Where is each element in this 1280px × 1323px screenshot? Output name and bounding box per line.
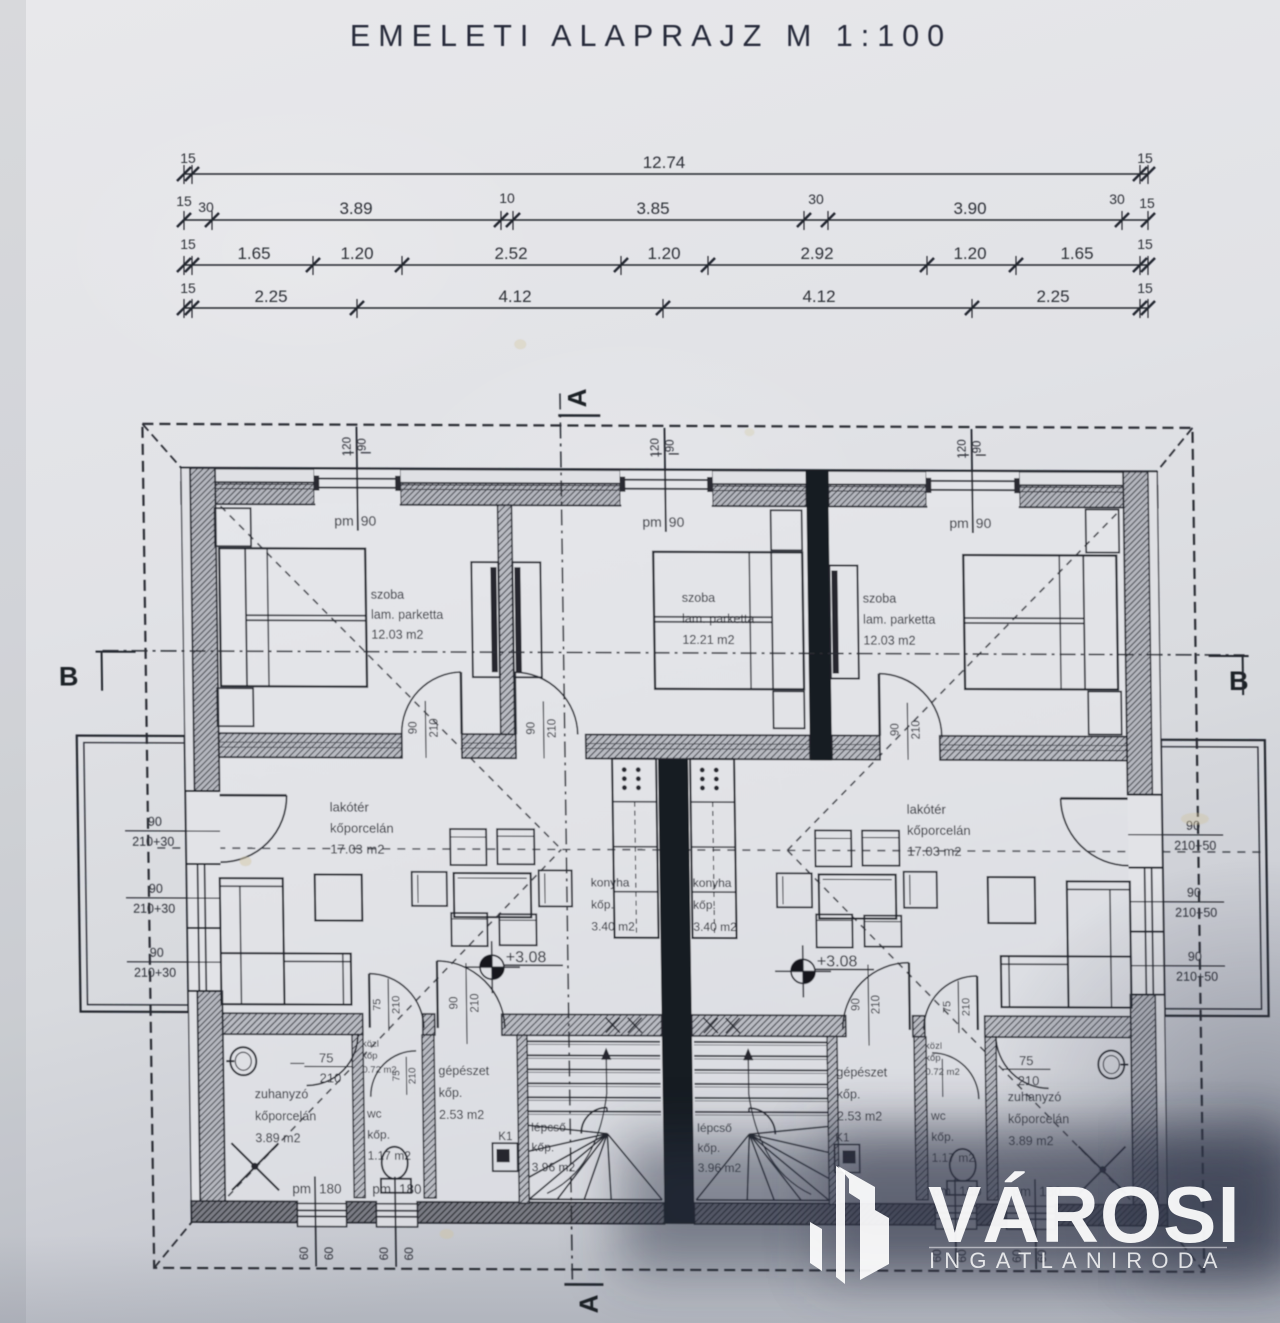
svg-text:szoba: szoba: [863, 592, 897, 606]
svg-text:lépcső: lépcső: [697, 1121, 732, 1135]
svg-text:90: 90: [850, 998, 862, 1011]
svg-text:90: 90: [890, 723, 902, 736]
svg-text:kőp.: kőp.: [591, 898, 614, 912]
svg-text:2.53 m2: 2.53 m2: [439, 1108, 484, 1122]
svg-text:60: 60: [402, 1247, 416, 1261]
svg-text:wc: wc: [366, 1107, 382, 1121]
svg-text:90: 90: [408, 721, 420, 734]
svg-text:+3.08: +3.08: [817, 953, 858, 970]
svg-text:3.40 m2: 3.40 m2: [591, 920, 635, 934]
svg-text:közl: közl: [925, 1041, 942, 1052]
svg-text:szoba: szoba: [371, 588, 405, 602]
svg-text:12.74: 12.74: [643, 153, 686, 172]
svg-text:90: 90: [669, 514, 685, 530]
svg-text:210: 210: [960, 998, 972, 1016]
svg-text:lam. parketta: lam. parketta: [371, 608, 443, 622]
svg-text:90: 90: [148, 815, 162, 829]
svg-text:lakótér: lakótér: [330, 800, 370, 815]
svg-text:210: 210: [870, 995, 882, 1014]
svg-text:1.20: 1.20: [340, 244, 373, 263]
svg-text:210: 210: [320, 1071, 342, 1086]
svg-text:B: B: [59, 662, 79, 692]
svg-text:3.89: 3.89: [339, 199, 372, 218]
svg-text:lam. parketta: lam. parketta: [682, 612, 754, 626]
svg-text:15: 15: [180, 236, 196, 252]
svg-text:gépészet: gépészet: [438, 1064, 489, 1078]
svg-text:wc: wc: [930, 1109, 946, 1123]
svg-text:kőp: kőp: [925, 1053, 940, 1064]
svg-text:75: 75: [941, 1001, 953, 1013]
svg-text:90: 90: [357, 438, 369, 451]
svg-text:zuhanyzó: zuhanyzó: [255, 1087, 309, 1101]
svg-text:90: 90: [150, 946, 164, 960]
svg-text:210: 210: [469, 993, 481, 1012]
svg-text:60: 60: [377, 1247, 391, 1261]
svg-text:2.25: 2.25: [1036, 287, 1069, 306]
svg-text:pm: pm: [334, 513, 354, 529]
svg-text:12.21 m2: 12.21 m2: [682, 633, 734, 647]
svg-text:kőp.: kőp.: [837, 1087, 861, 1101]
svg-text:+3.08: +3.08: [506, 949, 547, 966]
svg-text:120: 120: [957, 439, 969, 458]
svg-text:15: 15: [180, 280, 196, 296]
svg-text:90: 90: [665, 439, 677, 452]
svg-text:120: 120: [650, 438, 662, 457]
svg-text:12.03 m2: 12.03 m2: [371, 628, 423, 642]
svg-text:210: 210: [407, 1067, 418, 1084]
svg-text:1.65: 1.65: [237, 244, 270, 263]
svg-text:210+50: 210+50: [1174, 839, 1216, 853]
svg-text:15: 15: [176, 193, 192, 209]
svg-text:kőporcelán: kőporcelán: [907, 823, 971, 838]
svg-text:120: 120: [342, 437, 354, 456]
svg-text:4.12: 4.12: [498, 287, 531, 306]
svg-text:2.53 m2: 2.53 m2: [837, 1109, 882, 1123]
svg-text:A: A: [562, 388, 592, 407]
svg-text:lam. parketta: lam. parketta: [863, 613, 935, 627]
svg-text:konyha: konyha: [591, 876, 630, 890]
svg-text:kőporcelán: kőporcelán: [330, 821, 394, 836]
svg-text:konyha: konyha: [693, 876, 732, 890]
svg-text:2.52: 2.52: [494, 244, 527, 263]
svg-text:3.40 m2: 3.40 m2: [693, 920, 737, 934]
svg-text:90: 90: [361, 513, 377, 529]
svg-text:3.85: 3.85: [636, 199, 669, 218]
svg-text:1.17 m2: 1.17 m2: [368, 1149, 412, 1163]
svg-text:15: 15: [1139, 195, 1155, 211]
svg-text:B: B: [1229, 666, 1249, 696]
svg-text:gépészet: gépészet: [836, 1065, 887, 1079]
svg-text:1.65: 1.65: [1060, 244, 1093, 263]
svg-text:kőporcelán: kőporcelán: [255, 1109, 316, 1123]
svg-text:3.90: 3.90: [953, 199, 986, 218]
svg-text:210: 210: [547, 719, 559, 738]
svg-text:1.20: 1.20: [647, 244, 680, 263]
svg-text:210: 210: [390, 996, 402, 1014]
svg-text:75: 75: [319, 1050, 334, 1065]
svg-text:pm: pm: [949, 515, 969, 531]
svg-text:12.03 m2: 12.03 m2: [863, 634, 915, 648]
svg-text:30: 30: [808, 191, 824, 207]
svg-text:szoba: szoba: [682, 591, 716, 605]
svg-text:60: 60: [297, 1246, 311, 1260]
svg-text:15: 15: [1137, 280, 1153, 296]
svg-text:közl: közl: [362, 1039, 379, 1050]
svg-text:90: 90: [149, 882, 163, 896]
svg-text:kőp.: kőp.: [367, 1128, 390, 1142]
svg-text:2.92: 2.92: [800, 244, 833, 263]
svg-text:EMELETI ALAPRAJZ M 1:100: EMELETI ALAPRAJZ M 1:100: [350, 19, 952, 53]
svg-text:75: 75: [371, 999, 383, 1011]
svg-text:10: 10: [499, 190, 515, 206]
svg-text:60: 60: [322, 1247, 336, 1261]
svg-text:VÁROSI: VÁROSI: [928, 1170, 1241, 1259]
svg-text:K1: K1: [498, 1131, 512, 1143]
svg-text:30: 30: [198, 199, 214, 215]
svg-text:INGATLANIRODA: INGATLANIRODA: [929, 1248, 1227, 1273]
svg-text:210+30: 210+30: [134, 966, 176, 980]
svg-text:90: 90: [526, 722, 538, 735]
svg-text:210: 210: [428, 718, 440, 737]
svg-text:1.20: 1.20: [953, 244, 986, 263]
svg-text:210+30: 210+30: [132, 835, 174, 849]
svg-text:90: 90: [972, 441, 984, 454]
svg-text:kőp.: kőp.: [439, 1086, 463, 1100]
svg-text:15: 15: [180, 150, 196, 166]
svg-text:0.72 m2: 0.72 m2: [362, 1065, 396, 1076]
svg-text:15: 15: [1137, 150, 1153, 166]
svg-text:pm: pm: [642, 514, 662, 530]
svg-text:180: 180: [319, 1181, 342, 1196]
svg-text:kőp: kőp: [362, 1051, 377, 1062]
svg-text:15: 15: [1137, 236, 1153, 252]
svg-text:210+30: 210+30: [133, 902, 175, 916]
svg-text:30: 30: [1109, 191, 1125, 207]
svg-text:pm: pm: [292, 1181, 311, 1196]
svg-text:90: 90: [976, 515, 992, 531]
svg-text:kőp.: kőp.: [693, 898, 716, 912]
svg-text:4.12: 4.12: [802, 287, 835, 306]
svg-text:lakótér: lakótér: [907, 802, 947, 817]
svg-text:17.03 m2: 17.03 m2: [330, 842, 384, 857]
svg-text:17.03 m2: 17.03 m2: [907, 844, 961, 859]
svg-text:2.25: 2.25: [254, 287, 287, 306]
svg-text:A: A: [574, 1294, 604, 1313]
svg-text:90: 90: [448, 997, 460, 1010]
svg-text:0.72 m2: 0.72 m2: [925, 1067, 959, 1078]
svg-text:210: 210: [911, 720, 923, 739]
